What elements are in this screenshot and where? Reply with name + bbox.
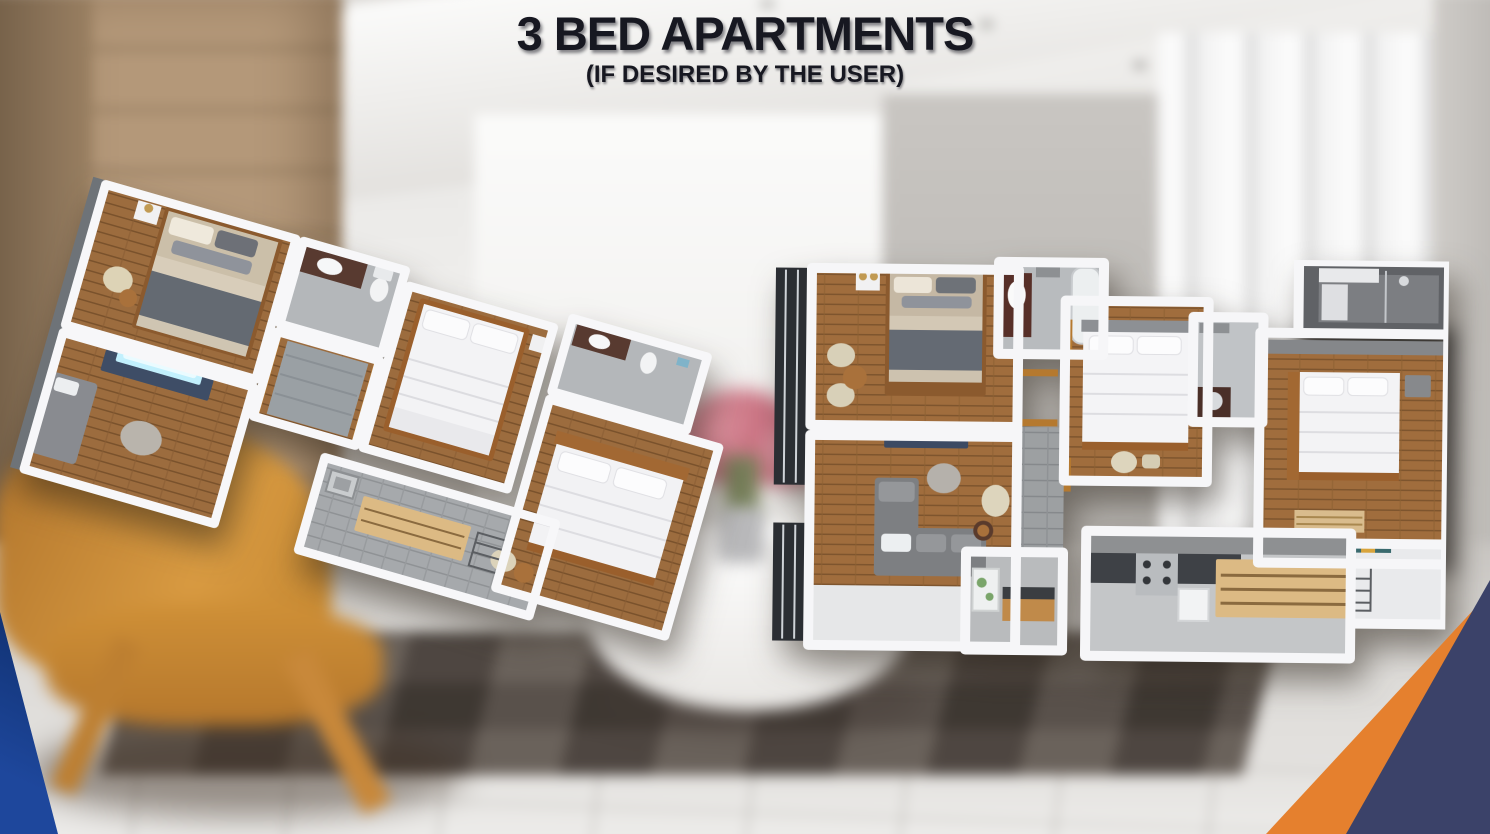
slide-subtitle: (IF DESIRED BY THE USER): [0, 61, 1490, 89]
corner-accent-bottom-right: [1240, 534, 1490, 834]
flower-vase: [717, 507, 764, 563]
slide-title: 3 BED APARTMENTS: [0, 6, 1490, 61]
slide-header: 3 BED APARTMENTS (IF DESIRED BY THE USER…: [0, 6, 1490, 89]
presentation-slide: 3 BED APARTMENTS (IF DESIRED BY THE USER…: [0, 0, 1490, 834]
